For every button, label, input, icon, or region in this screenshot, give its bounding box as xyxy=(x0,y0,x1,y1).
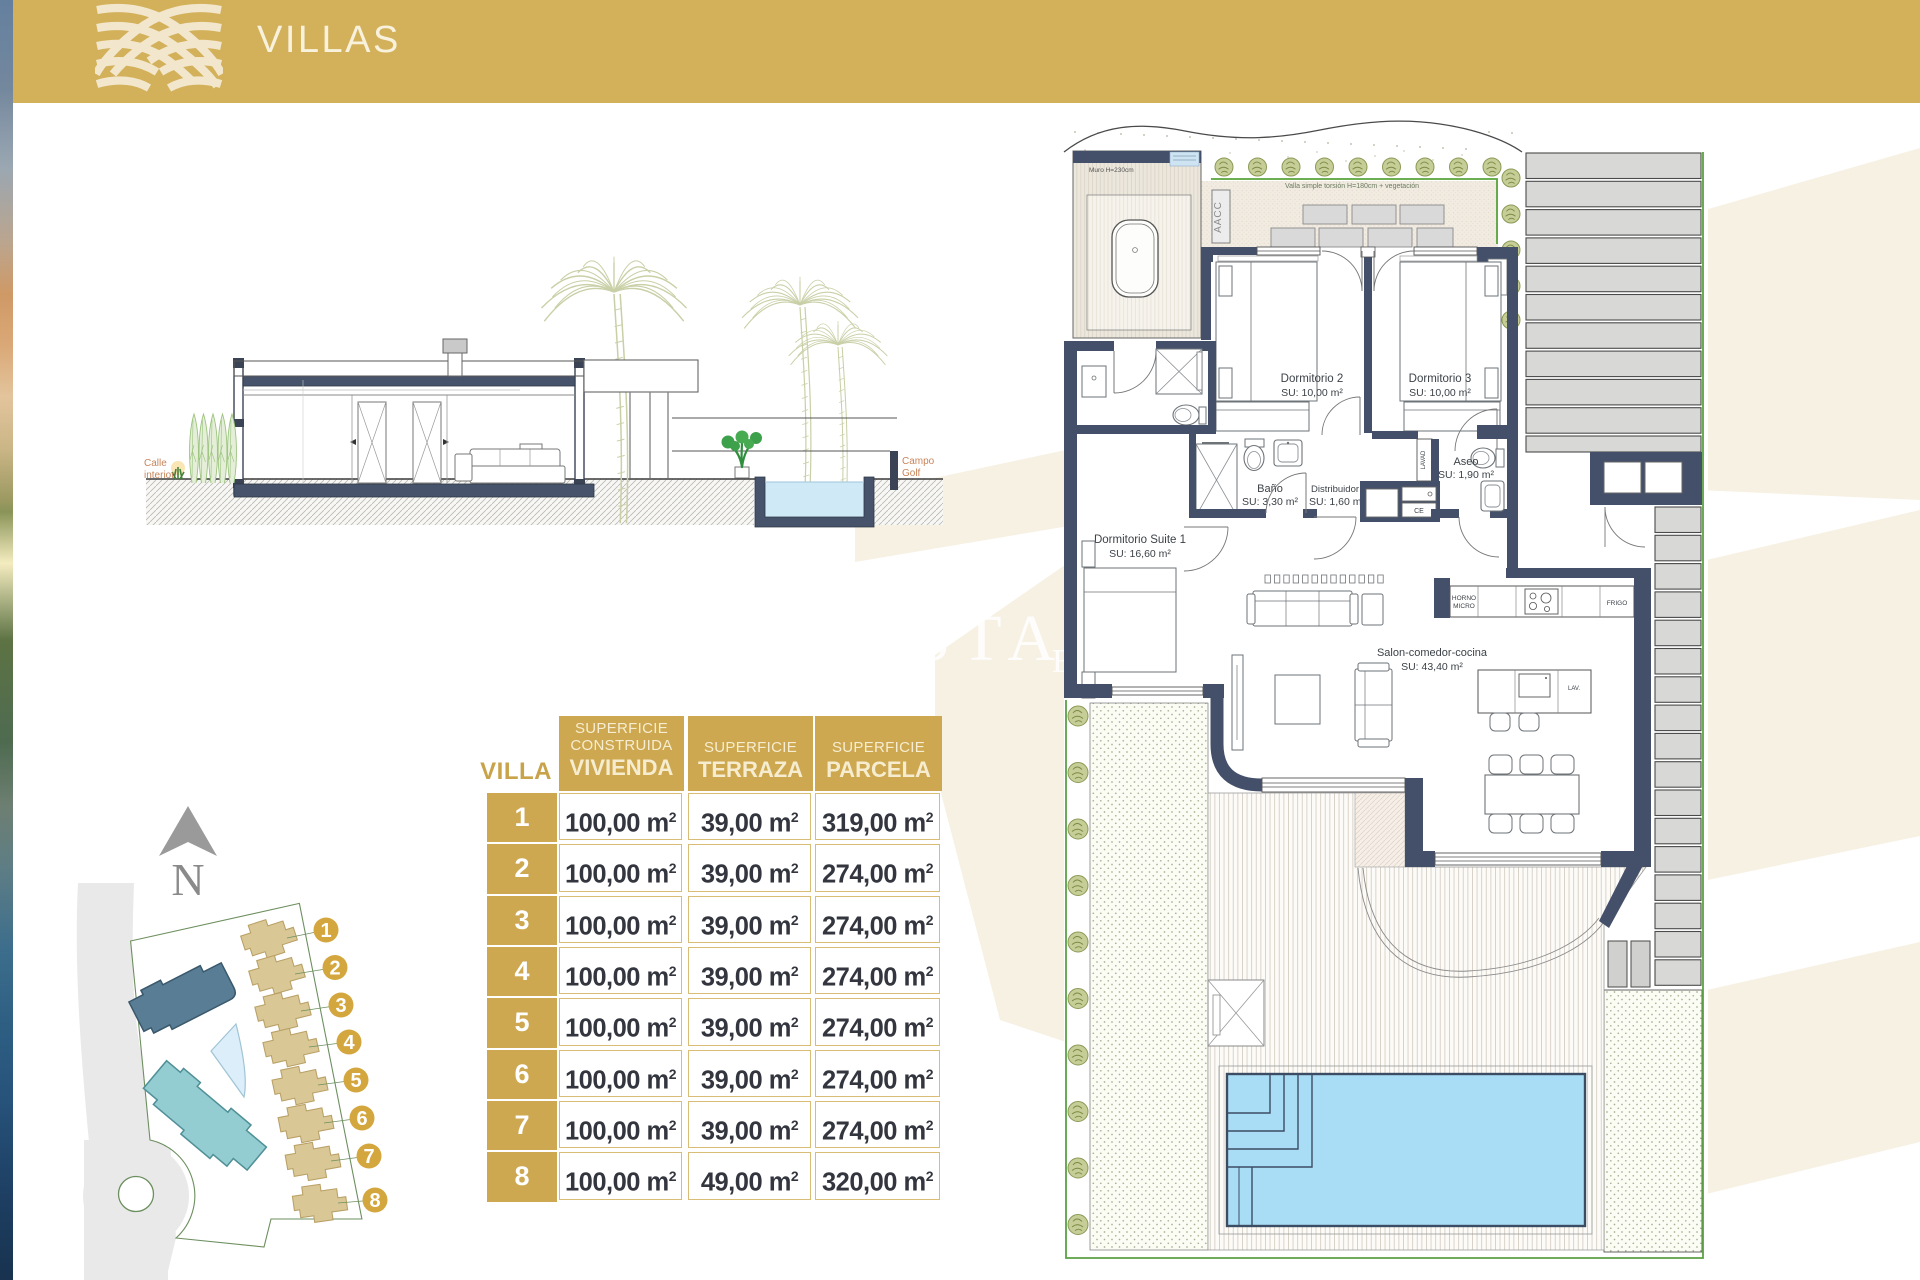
svg-text:Valla simple torsión H=180cm +: Valla simple torsión H=180cm + vegetació… xyxy=(1285,183,1419,190)
svg-text:LAV.: LAV. xyxy=(1568,686,1580,692)
svg-text:MICRO: MICRO xyxy=(1453,603,1475,610)
svg-text:Distribuidor: Distribuidor xyxy=(1311,484,1359,495)
svg-text:SU: 16,60 m²: SU: 16,60 m² xyxy=(1109,548,1171,560)
svg-text:CE: CE xyxy=(1414,508,1424,515)
svg-text:Campo: Campo xyxy=(902,456,935,467)
svg-text:Golf: Golf xyxy=(902,468,921,479)
svg-text:FRIGO: FRIGO xyxy=(1607,600,1628,607)
svg-text:Dormitorio 2: Dormitorio 2 xyxy=(1281,373,1344,385)
svg-text:Aseo: Aseo xyxy=(1453,456,1478,468)
svg-text:SU: 1,60 m²: SU: 1,60 m² xyxy=(1309,496,1366,508)
svg-text:N: N xyxy=(171,854,204,905)
svg-text:Calle: Calle xyxy=(144,458,167,469)
svg-text:SU: 1,90 m²: SU: 1,90 m² xyxy=(1438,469,1495,481)
svg-text:SU: 3,30 m²: SU: 3,30 m² xyxy=(1242,496,1299,508)
svg-text:interior: interior xyxy=(144,470,175,481)
svg-text:4: 4 xyxy=(343,1032,355,1054)
svg-text:6: 6 xyxy=(356,1108,367,1130)
svg-text:8: 8 xyxy=(369,1190,380,1212)
svg-text:5: 5 xyxy=(350,1070,361,1092)
svg-text:Dormitorio 3: Dormitorio 3 xyxy=(1409,373,1472,385)
svg-text:Baño: Baño xyxy=(1257,483,1283,495)
svg-text:7: 7 xyxy=(363,1146,374,1168)
svg-text:Salon-comedor-cocina: Salon-comedor-cocina xyxy=(1377,647,1488,659)
svg-text:SU: 43,40 m²: SU: 43,40 m² xyxy=(1401,661,1463,673)
svg-text:AACC: AACC xyxy=(1213,201,1224,233)
svg-text:LAVAD: LAVAD xyxy=(1421,450,1427,469)
svg-text:SU: 10,00 m²: SU: 10,00 m² xyxy=(1409,387,1471,399)
svg-text:Muro H=230cm: Muro H=230cm xyxy=(1089,167,1134,174)
svg-text:HORNO: HORNO xyxy=(1452,595,1476,602)
svg-text:1: 1 xyxy=(320,920,331,942)
svg-text:Dormitorio Suite 1: Dormitorio Suite 1 xyxy=(1094,534,1186,546)
svg-text:3: 3 xyxy=(335,995,346,1017)
svg-text:SU: 10,00 m²: SU: 10,00 m² xyxy=(1281,387,1343,399)
svg-text:2: 2 xyxy=(329,958,340,980)
